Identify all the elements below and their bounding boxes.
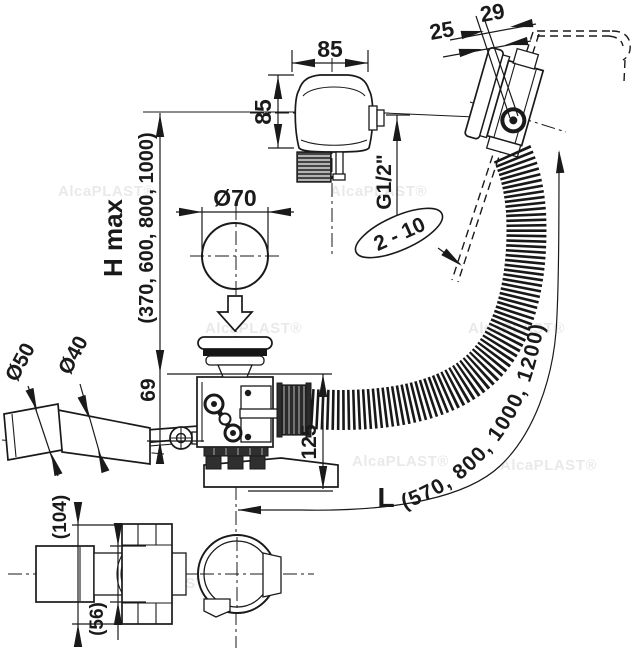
watermark-text: AlcaPLAST® xyxy=(468,320,565,337)
dim-label-56: (56) xyxy=(87,602,108,636)
overflow-elbow xyxy=(463,41,547,157)
bathtub-wall-dashed xyxy=(452,31,630,282)
bottom-side-tab xyxy=(263,553,281,597)
drain-assembly-bottom-view xyxy=(36,524,281,624)
dim-label-outlet-id: Ø40 xyxy=(54,332,93,378)
dim-knob-width: 85 xyxy=(292,36,368,72)
knob-cable-nipple-end xyxy=(377,110,384,126)
bottom-outlet-socket xyxy=(36,546,94,602)
dim-label-hmax-values: (370, 600, 800, 1000) xyxy=(136,132,158,323)
bottom-bracket xyxy=(204,599,230,617)
bath-drain-overflow-diagram: AlcaPLAST® AlcaPLAST® AlcaPLAST® AlcaPLA… xyxy=(0,0,636,650)
dim-thread-size: G1/2" xyxy=(373,115,410,216)
dim-plug-diameter: Ø70 xyxy=(176,185,294,250)
knob-threaded-connector xyxy=(297,152,331,182)
bottom-castle-flange xyxy=(122,524,172,624)
dim-label-knob-width: 85 xyxy=(317,36,343,62)
dim-label-25: 25 xyxy=(428,16,456,45)
technical-drawing-canvas: AlcaPLAST® AlcaPLAST® AlcaPLAST® AlcaPLA… xyxy=(0,0,636,650)
watermark-text: AlcaPLAST® xyxy=(352,453,449,470)
dim-label-knob-height: 85 xyxy=(250,99,276,125)
knob-cable-nipple xyxy=(369,106,377,130)
dim-label-29: 29 xyxy=(478,0,506,27)
dim-label-plug-diameter: Ø70 xyxy=(213,185,256,211)
dim-label-outlet-od: Ø50 xyxy=(1,339,40,385)
outlet-pipe-socket xyxy=(4,404,62,460)
tub-rim-curl xyxy=(612,31,630,60)
callout-wall-thickness: 2 - 10 xyxy=(349,198,464,269)
dim-label-L: L xyxy=(377,482,394,513)
dim-label-104: (104) xyxy=(50,495,71,539)
drain-locking-nut xyxy=(204,447,268,469)
knob-pull-rod xyxy=(336,152,343,176)
drain-plug xyxy=(198,337,272,377)
dim-label-hmax: H max xyxy=(98,198,128,277)
dim-label-thread: G1/2" xyxy=(373,154,396,209)
dim-label-69: 69 xyxy=(137,378,160,401)
dim-label-125: 125 xyxy=(298,424,321,459)
control-knob xyxy=(295,75,384,182)
outlet-pipe xyxy=(58,410,150,464)
watermark-text: AlcaPLAST® xyxy=(205,320,302,337)
plate-screw xyxy=(245,434,251,440)
watermark-text: AlcaPLAST® xyxy=(500,457,597,474)
lower-trap-chamber xyxy=(204,458,338,487)
side-outlet-stub xyxy=(240,409,280,418)
plate-screw xyxy=(245,390,251,396)
knob-pull-rod-foot xyxy=(333,174,345,180)
